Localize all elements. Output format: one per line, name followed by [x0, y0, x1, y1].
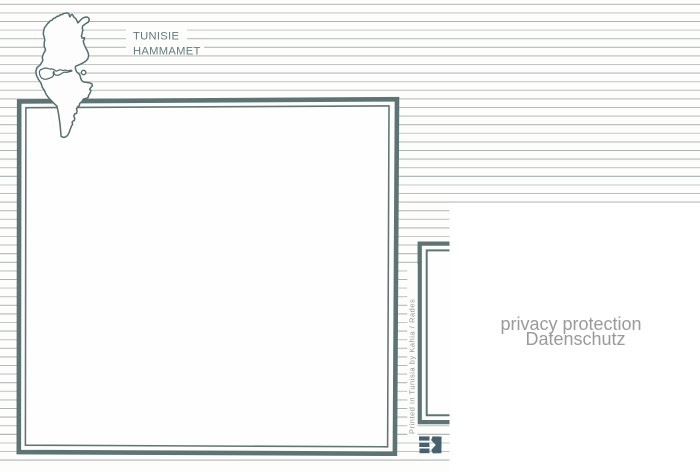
svg-text:Printed in Tunisia by Kahia /: Printed in Tunisia by Kahia / Rades — [408, 299, 417, 434]
svg-text:TUNISIE: TUNISIE — [133, 31, 179, 43]
svg-text:Datenschutz: Datenschutz — [525, 329, 625, 349]
svg-text:HAMMAMET: HAMMAMET — [133, 45, 201, 57]
